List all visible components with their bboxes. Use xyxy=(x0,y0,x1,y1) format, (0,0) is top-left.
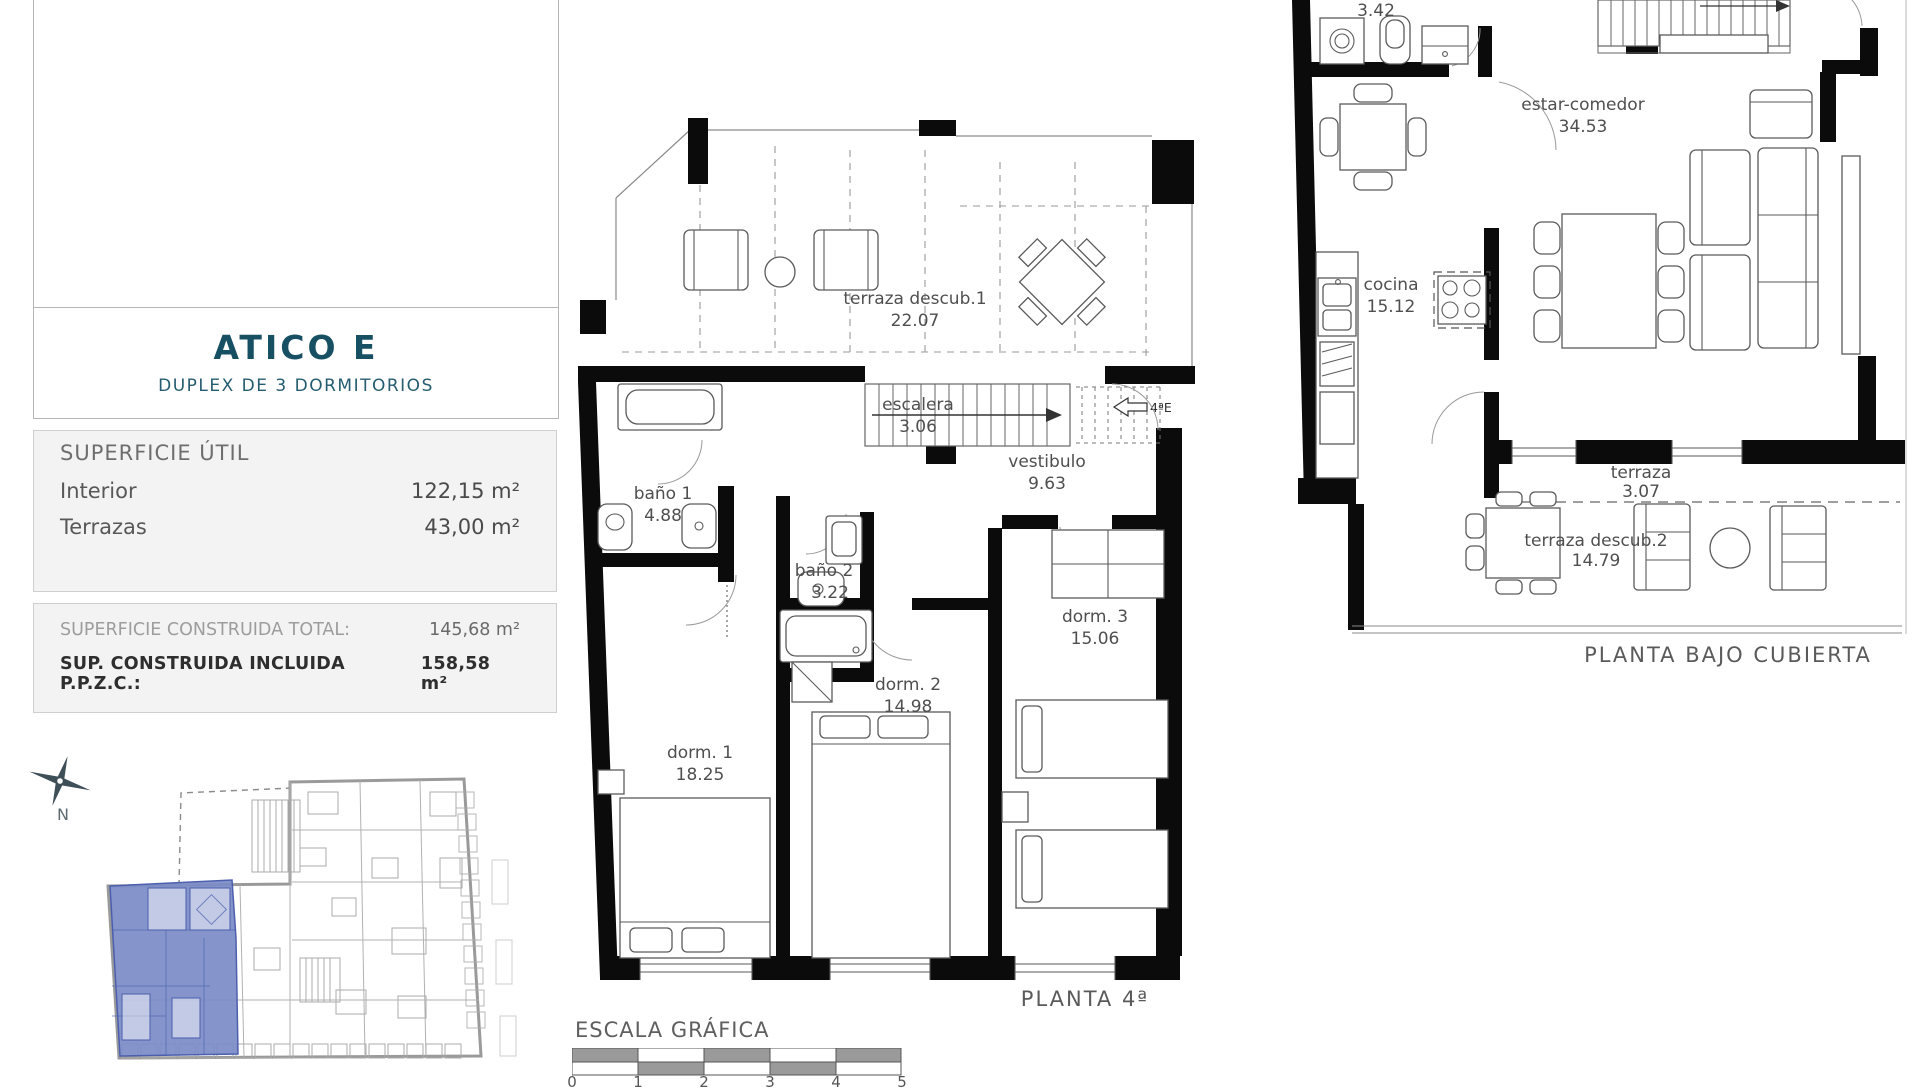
table-row: SUP. CONSTRUIDA INCLUIDA P.P.Z.C.: 158,5… xyxy=(60,654,520,694)
plan-sheet: { "colors": { "accent_teal": "#174f63", … xyxy=(0,0,1920,1080)
room-name: baño 2 xyxy=(795,561,854,581)
row-label: SUPERFICIE CONSTRUIDA TOTAL: xyxy=(60,620,350,640)
room-name: terraza xyxy=(1611,463,1672,483)
unit-title-box: ATICO E DUPLEX DE 3 DORMITORIOS xyxy=(33,307,559,419)
scale-title: ESCALA GRÁFICA xyxy=(575,1018,770,1042)
row-label: SUP. CONSTRUIDA INCLUIDA P.P.Z.C.: xyxy=(60,654,421,694)
row-value: 122,15 m² xyxy=(411,479,520,503)
room-area: 4.88 xyxy=(644,506,682,526)
superficie-construida-panel: SUPERFICIE CONSTRUIDA TOTAL: 145,68 m² S… xyxy=(33,603,557,713)
room-area: 3.07 xyxy=(1622,482,1660,502)
room-name: vestibulo xyxy=(1008,452,1085,472)
row-label: Interior xyxy=(60,479,137,503)
scale-tick: 0 xyxy=(561,1073,583,1091)
room-name: terraza descub.1 xyxy=(843,289,986,309)
entry-arrow-icon xyxy=(1114,398,1147,416)
floor-plan-bajo-cubierta: 3.42 estar-comedor 34.53 cocina 15.12 te… xyxy=(1270,0,1920,700)
key-site-plan xyxy=(90,765,535,1080)
row-label: Terrazas xyxy=(60,515,147,539)
entry-door-label: 4ªE xyxy=(1150,400,1172,415)
scale-bar xyxy=(572,1048,902,1076)
row-value: 43,00 m² xyxy=(424,515,520,539)
room-name: escalera xyxy=(882,395,954,415)
scale-tick: 2 xyxy=(693,1073,715,1091)
room-area: 3.42 xyxy=(1357,1,1395,21)
scale-tick: 3 xyxy=(759,1073,781,1091)
room-area: 3.22 xyxy=(811,583,849,603)
scale-tick: 1 xyxy=(627,1073,649,1091)
room-area: 3.06 xyxy=(899,417,937,437)
room-name: baño 1 xyxy=(634,484,693,504)
room-area: 22.07 xyxy=(891,311,940,331)
floor-plan-planta-4: 4ªE terraza de xyxy=(560,0,1220,1020)
room-name: dorm. 2 xyxy=(875,675,941,695)
room-name: cocina xyxy=(1363,275,1418,295)
row-value: 145,68 m² xyxy=(429,620,520,640)
room-area: 15.06 xyxy=(1071,629,1120,649)
room-area: 15.12 xyxy=(1367,297,1416,317)
room-name: dorm. 3 xyxy=(1062,607,1128,627)
room-name: estar-comedor xyxy=(1521,95,1644,115)
unit-title: ATICO E xyxy=(34,328,558,367)
scale-tick: 4 xyxy=(825,1073,847,1091)
room-area: 34.53 xyxy=(1559,117,1608,137)
room-area: 14.98 xyxy=(884,697,933,717)
room-area: 9.63 xyxy=(1028,474,1066,494)
superficie-util-panel: SUPERFICIE ÚTIL Interior 122,15 m² Terra… xyxy=(33,430,557,592)
table-row: Terrazas 43,00 m² xyxy=(60,515,520,539)
scale-tick: 5 xyxy=(891,1073,913,1091)
plan-caption-bajo-cubierta: PLANTA BAJO CUBIERTA xyxy=(1584,643,1872,667)
room-name: terraza descub.2 xyxy=(1524,531,1667,551)
logo-box xyxy=(33,0,559,310)
unit-subtitle: DUPLEX DE 3 DORMITORIOS xyxy=(34,376,558,396)
superficie-util-heading: SUPERFICIE ÚTIL xyxy=(60,441,520,465)
plan-caption-planta-4: PLANTA 4ª xyxy=(1021,987,1149,1011)
room-area: 18.25 xyxy=(676,765,725,785)
row-value: 158,58 m² xyxy=(421,654,520,694)
table-row: SUPERFICIE CONSTRUIDA TOTAL: 145,68 m² xyxy=(60,620,520,640)
compass-north-label: N xyxy=(57,805,69,824)
table-row: Interior 122,15 m² xyxy=(60,479,520,503)
room-area: 14.79 xyxy=(1572,551,1621,571)
room-name: dorm. 1 xyxy=(667,743,733,763)
